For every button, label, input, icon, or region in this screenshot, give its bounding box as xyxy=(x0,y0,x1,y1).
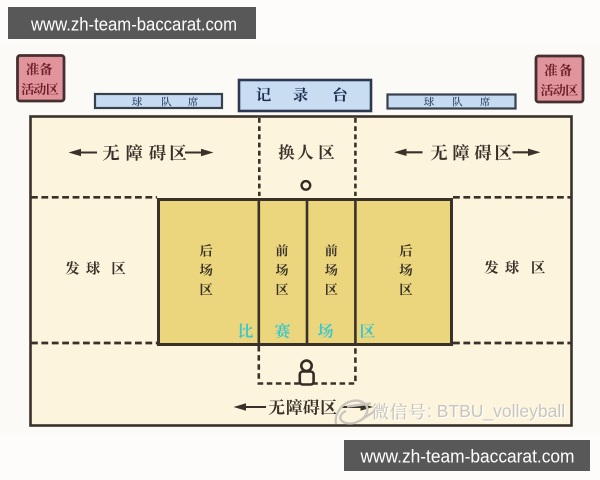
svg-text:: BTBU_volleyball: : BTBU_volleyball xyxy=(427,401,565,422)
svg-text:www.zh-team-baccarat.com: www.zh-team-baccarat.com xyxy=(30,15,237,35)
svg-text:www.zh-team-baccarat.com: www.zh-team-baccarat.com xyxy=(360,447,575,467)
